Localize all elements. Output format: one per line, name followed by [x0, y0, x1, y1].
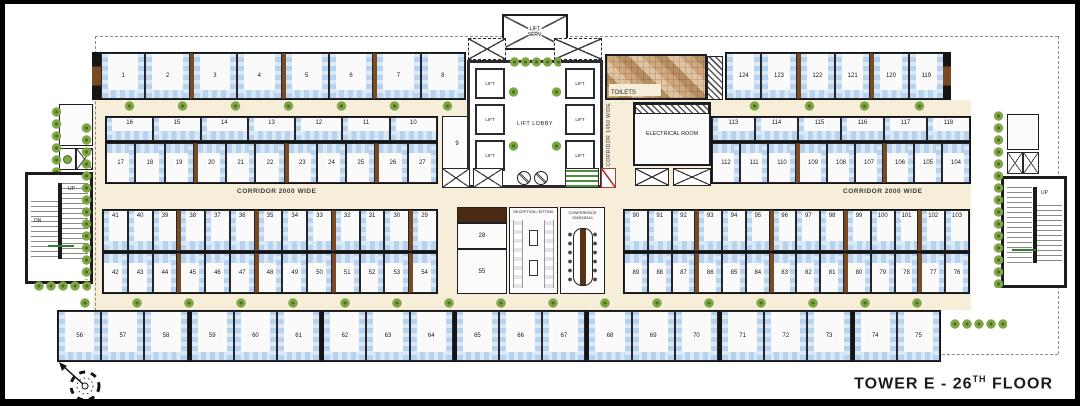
unit-number: 121	[847, 73, 859, 79]
unit-70: 70	[675, 311, 718, 361]
unit-number: 68	[606, 333, 615, 339]
unit-number: 54	[420, 270, 429, 276]
tree-col-left-b	[81, 122, 92, 280]
unit-number: 44	[161, 270, 170, 276]
unit-number: 92	[679, 213, 688, 219]
unit-85: 85	[722, 253, 746, 293]
unit-32: 32	[332, 210, 360, 251]
unit-row-bottom: 5657585960616263646566676869707172737475	[57, 310, 941, 362]
tree-cluster-left-bottom	[33, 280, 91, 291]
unit-number: 36	[238, 213, 247, 219]
unit-number: 74	[871, 333, 880, 339]
unit-95: 95	[746, 210, 770, 251]
unit-86: 86	[695, 253, 722, 293]
corridor-label-right: CORRIDOR 2000 WIDE	[843, 188, 922, 195]
lift-6: LIFT	[565, 140, 595, 171]
unit-row-mid-lower-right-bottom: 8988878685848382818079787776	[623, 252, 970, 294]
unit-37: 37	[205, 210, 230, 251]
unit-number: 114	[771, 120, 783, 126]
unit-number: 42	[111, 270, 120, 276]
unit-number: 80	[855, 270, 864, 276]
unit-number: 43	[136, 270, 145, 276]
unit-34: 34	[282, 210, 307, 251]
unit-number: 106	[894, 160, 906, 166]
unit-93: 93	[695, 210, 722, 251]
unit-30: 30	[384, 210, 409, 251]
unit-number: 72	[782, 333, 791, 339]
unit-64: 64	[410, 311, 453, 361]
unit-49: 49	[282, 253, 307, 293]
unit-113: 113	[712, 117, 755, 141]
unit-56: 56	[58, 311, 101, 361]
unit-83: 83	[770, 253, 797, 293]
unit-number: 9	[454, 141, 459, 147]
unit-63: 63	[366, 311, 409, 361]
unit-92: 92	[672, 210, 696, 251]
unit-row-mid-upper-left-top: 16151413121110	[105, 116, 438, 142]
unit-118: 118	[927, 117, 970, 141]
unit-124: 124	[726, 53, 761, 99]
column-circle-2	[534, 171, 548, 185]
unit-102: 102	[918, 210, 945, 251]
corridor-label-left: CORRIDOR 2000 WIDE	[237, 188, 316, 195]
unit-87: 87	[672, 253, 696, 293]
unit-number: 78	[902, 270, 911, 276]
unit-69: 69	[632, 311, 675, 361]
unit-number: 90	[632, 213, 641, 219]
unit-65: 65	[453, 311, 499, 361]
unit-number: 84	[753, 270, 762, 276]
unit-57: 57	[101, 311, 144, 361]
unit-54: 54	[409, 253, 437, 293]
unit-number: 35	[266, 213, 275, 219]
unit-11: 11	[342, 117, 389, 141]
unit-number: 96	[780, 213, 789, 219]
unit-84: 84	[746, 253, 770, 293]
unit-62: 62	[320, 311, 366, 361]
unit-number: 88	[655, 270, 664, 276]
tree-col-right	[993, 110, 1004, 288]
unit-number: 38	[188, 213, 197, 219]
corridor-1450-label: CORRIDOR 1450 WIDE	[606, 102, 618, 166]
conference-table	[573, 228, 593, 286]
toilets-label: TOILETS	[611, 90, 636, 96]
unit-27: 27	[408, 143, 437, 183]
unit-109: 109	[796, 143, 827, 183]
unit-number: 26	[389, 160, 398, 166]
unit-number: 97	[804, 213, 813, 219]
unit-45: 45	[177, 253, 205, 293]
unit-number: 75	[914, 333, 923, 339]
unit-94: 94	[722, 210, 746, 251]
unit-81: 81	[820, 253, 844, 293]
stair-handrail	[48, 245, 74, 247]
unit-number: 27	[418, 160, 427, 166]
unit-43: 43	[128, 253, 153, 293]
unit-14: 14	[201, 117, 248, 141]
unit-number: 28	[478, 233, 487, 239]
electrical-room-label: ELECTRICAL ROOM	[646, 131, 698, 138]
unit-75: 75	[897, 311, 940, 361]
unit-number: 71	[738, 333, 747, 339]
unit-98: 98	[820, 210, 844, 251]
unit-number: 113	[728, 120, 740, 126]
unit-46: 46	[205, 253, 230, 293]
unit-12: 12	[295, 117, 342, 141]
unit-number: 77	[929, 270, 938, 276]
unit-number: 120	[885, 73, 897, 79]
tree-cluster-right-bottom	[949, 318, 1007, 329]
unit-number: 82	[804, 270, 813, 276]
unit-number: 107	[863, 160, 875, 166]
unit-number: 61	[294, 333, 303, 339]
stair-up-label: UP	[1041, 191, 1048, 196]
shaft-electrical-b	[673, 168, 711, 186]
unit-number: 37	[213, 213, 222, 219]
lift-5: LIFT	[565, 104, 595, 135]
unit-number: 22	[266, 160, 275, 166]
shaft-fire	[601, 168, 616, 188]
floor-plan-sheet: 12345678 124123122121120119 161514131211…	[0, 0, 1080, 406]
unit-number: 103	[951, 213, 963, 219]
unit-number: 69	[649, 333, 658, 339]
unit-number: 55	[478, 269, 487, 275]
unit-number: 58	[162, 333, 171, 339]
unit-number: 67	[559, 333, 568, 339]
unit-78: 78	[895, 253, 919, 293]
unit-52: 52	[360, 253, 385, 293]
unit-44: 44	[153, 253, 178, 293]
unit-number: 85	[730, 270, 739, 276]
unit-number: 29	[420, 213, 429, 219]
unit-number: 23	[298, 160, 307, 166]
shaft-top-left	[468, 38, 506, 60]
unit-number: 81	[828, 270, 837, 276]
unit-24: 24	[317, 143, 346, 183]
stair-right: UP	[1001, 176, 1067, 288]
unit-19: 19	[165, 143, 194, 183]
electrical-hatch	[635, 104, 709, 114]
shaft-electrical-a	[635, 168, 669, 186]
unit-number: 93	[706, 213, 715, 219]
stair-right-flight-b	[1037, 205, 1062, 263]
unit-74: 74	[851, 311, 897, 361]
unit-96: 96	[770, 210, 797, 251]
unit-36: 36	[230, 210, 255, 251]
unit-row-top-right: 124123122121120119	[725, 52, 945, 100]
unit-112: 112	[712, 143, 740, 183]
unit-8: 8	[421, 53, 465, 99]
lift-lobby-label: LIFT LOBBY	[470, 121, 600, 127]
pantry-counter	[457, 207, 507, 223]
service-lift-label: LIFT SERV.	[528, 26, 542, 39]
unit-40: 40	[128, 210, 153, 251]
unit-number: 118	[943, 120, 955, 126]
unit-number: 12	[314, 120, 323, 126]
unit-13: 13	[248, 117, 295, 141]
unit-number: 30	[392, 213, 401, 219]
unit-number: 19	[175, 160, 184, 166]
unit-111: 111	[740, 143, 768, 183]
unit-41: 41	[103, 210, 128, 251]
unit-number: 16	[125, 120, 134, 126]
unit-73: 73	[807, 311, 850, 361]
unit-106: 106	[883, 143, 914, 183]
unit-number: 32	[343, 213, 352, 219]
right-planter-room	[1007, 114, 1039, 150]
unit-number: 70	[692, 333, 701, 339]
unit-101: 101	[895, 210, 919, 251]
unit-number: 100	[877, 213, 889, 219]
shaft-lobby-a	[442, 168, 470, 188]
unit-number: 24	[327, 160, 336, 166]
unit-39: 39	[153, 210, 178, 251]
unit-15: 15	[153, 117, 200, 141]
tree-row-top-right	[727, 100, 947, 112]
unit-91: 91	[648, 210, 672, 251]
unit-79: 79	[871, 253, 895, 293]
tree-row-bottom	[59, 297, 943, 309]
unit-47: 47	[230, 253, 255, 293]
unit-number: 21	[236, 160, 245, 166]
unit-22: 22	[255, 143, 284, 183]
right-lift-shaft-b	[1023, 152, 1039, 174]
unit-number: 115	[814, 120, 826, 126]
unit-number: 119	[921, 73, 933, 79]
reception-desks-left	[513, 220, 523, 288]
unit-31: 31	[360, 210, 385, 251]
unit-number: 7	[396, 73, 401, 79]
unit-2: 2	[145, 53, 189, 99]
unit-number: 3	[212, 73, 217, 79]
unit-72: 72	[764, 311, 807, 361]
unit-110: 110	[768, 143, 796, 183]
unit-number: 105	[922, 160, 934, 166]
unit-7: 7	[373, 53, 420, 99]
unit-120: 120	[870, 53, 908, 99]
unit-77: 77	[918, 253, 945, 293]
unit-number: 89	[632, 270, 641, 276]
unit-58: 58	[144, 311, 187, 361]
boundary-line-bottom-right	[937, 354, 1058, 355]
unit-29: 29	[409, 210, 437, 251]
lobby-planters-left	[508, 65, 519, 183]
unit-number: 73	[825, 333, 834, 339]
unit-number: 5	[304, 73, 309, 79]
unit-59: 59	[188, 311, 234, 361]
unit-60: 60	[234, 311, 277, 361]
unit-number: 60	[251, 333, 260, 339]
unit-33: 33	[307, 210, 332, 251]
unit-number: 124	[738, 73, 750, 79]
stair-right-flight-a	[1007, 187, 1032, 263]
unit-row-mid-upper-left-bottom: 1718192021222324252627	[105, 142, 438, 184]
unit-107: 107	[855, 143, 883, 183]
unit-48: 48	[255, 253, 283, 293]
unit-number: 14	[220, 120, 229, 126]
unit-number: 46	[213, 270, 222, 276]
unit-number: 53	[392, 270, 401, 276]
stair-left-flight-a	[31, 201, 58, 259]
unit-row-mid-lower-right-top: 90919293949596979899100101102103	[623, 209, 970, 252]
unit-row-mid-lower-left-bottom: 42434445464748495051525354	[102, 252, 438, 294]
unit-4: 4	[237, 53, 281, 99]
unit-122: 122	[797, 53, 835, 99]
unit-number: 51	[343, 270, 352, 276]
unit-number: 117	[900, 120, 912, 126]
unit-117: 117	[884, 117, 927, 141]
wall-block-right	[943, 52, 951, 100]
unit-number: 66	[516, 333, 525, 339]
reception-room: RECEPTION / SITTING	[509, 207, 558, 294]
unit-number: 18	[146, 160, 155, 166]
lift-1: LIFT	[475, 68, 505, 99]
unit-row-mid-upper-right-top: 113114115116117118	[711, 116, 971, 142]
unit-number: 110	[776, 160, 788, 166]
unit-18: 18	[135, 143, 164, 183]
unit-number: 98	[828, 213, 837, 219]
stair-down-label: DN	[34, 219, 41, 224]
unit-number: 13	[267, 120, 276, 126]
unit-42: 42	[103, 253, 128, 293]
unit-number: 45	[188, 270, 197, 276]
unit-115: 115	[798, 117, 841, 141]
unit-number: 83	[780, 270, 789, 276]
unit-50: 50	[307, 253, 332, 293]
unit-114: 114	[755, 117, 798, 141]
column-circle-1	[517, 171, 531, 185]
unit-108: 108	[827, 143, 855, 183]
conference-label: CONFERENCE 2500X6244	[568, 210, 596, 220]
unit-number: 108	[835, 160, 847, 166]
wall-block-left	[92, 52, 101, 100]
unit-82: 82	[796, 253, 820, 293]
unit-90: 90	[624, 210, 648, 251]
unit-number: 48	[266, 270, 275, 276]
unit-76: 76	[945, 253, 969, 293]
unit-number: 40	[136, 213, 145, 219]
unit-10: 10	[390, 117, 437, 141]
right-lift-shaft-a	[1007, 152, 1023, 174]
shaft-louvre	[565, 168, 599, 188]
unit-number: 122	[811, 73, 823, 79]
lobby-entry-planters	[509, 56, 561, 67]
unit-number: 39	[161, 213, 170, 219]
unit-number: 1	[121, 73, 126, 79]
unit-28: 28	[457, 223, 507, 249]
unit-119: 119	[909, 53, 944, 99]
unit-number: 91	[655, 213, 664, 219]
reception-desks-right	[544, 220, 554, 288]
reception-label: RECEPTION / SITTING	[513, 210, 553, 215]
lift-2: LIFT	[475, 104, 505, 135]
unit-number: 95	[753, 213, 762, 219]
stair-up-label: UP	[68, 187, 75, 192]
unit-103: 103	[945, 210, 969, 251]
unit-99: 99	[844, 210, 871, 251]
unit-51: 51	[332, 253, 360, 293]
unit-105: 105	[914, 143, 942, 183]
unit-number: 41	[111, 213, 120, 219]
unit-80: 80	[844, 253, 871, 293]
unit-121: 121	[835, 53, 870, 99]
unit-number: 101	[900, 213, 912, 219]
unit-61: 61	[277, 311, 320, 361]
unit-number: 79	[878, 270, 887, 276]
unit-66: 66	[499, 311, 542, 361]
unit-6: 6	[329, 53, 373, 99]
conference-chairs-right	[591, 230, 599, 286]
unit-100: 100	[871, 210, 895, 251]
lobby-planters-right	[551, 65, 562, 183]
unit-16: 16	[106, 117, 153, 141]
unit-number: 47	[238, 270, 247, 276]
unit-number: 31	[368, 213, 377, 219]
lift-4: LIFT	[565, 68, 595, 99]
unit-97: 97	[796, 210, 820, 251]
unit-71: 71	[718, 311, 764, 361]
unit-1: 1	[101, 53, 145, 99]
unit-21: 21	[226, 143, 255, 183]
unit-55: 55	[457, 249, 507, 294]
unit-38: 38	[177, 210, 205, 251]
unit-number: 17	[116, 160, 125, 166]
unit-20: 20	[194, 143, 226, 183]
unit-row-mid-lower-left-top: 41403938373635343332313029	[102, 209, 438, 252]
unit-number: 76	[953, 270, 962, 276]
unit-116: 116	[841, 117, 884, 141]
unit-row-top-left: 12345678	[100, 52, 466, 100]
unit-number: 86	[706, 270, 715, 276]
conference-room: CONFERENCE 2500X6244	[560, 207, 605, 294]
unit-104: 104	[942, 143, 970, 183]
unit-number: 20	[207, 160, 216, 166]
unit-67: 67	[542, 311, 585, 361]
unit-number: 116	[857, 120, 869, 126]
tree-col-left-a	[51, 106, 62, 172]
unit-number: 25	[356, 160, 365, 166]
unit-number: 111	[748, 160, 759, 166]
unit-35: 35	[255, 210, 283, 251]
unit-number: 64	[427, 333, 436, 339]
unit-17: 17	[106, 143, 135, 183]
page-title: TOWER E - 26TH FLOOR	[854, 374, 1053, 393]
unit-number: 104	[950, 160, 962, 166]
unit-number: 109	[807, 160, 819, 166]
lift-3: LIFT	[475, 140, 505, 171]
reception-table-2	[529, 260, 538, 276]
north-compass-icon	[53, 358, 113, 406]
unit-number: 49	[290, 270, 299, 276]
conference-chairs-left	[566, 230, 574, 286]
unit-3: 3	[190, 53, 237, 99]
unit-89: 89	[624, 253, 648, 293]
stair-handrail	[1012, 249, 1036, 251]
unit-number: 50	[315, 270, 324, 276]
shaft-lobby-b	[473, 168, 503, 188]
unit-number: 11	[362, 120, 370, 126]
shaft-top-right	[554, 38, 602, 60]
hatch-patch	[707, 56, 723, 100]
unit-number: 94	[730, 213, 739, 219]
unit-5: 5	[282, 53, 329, 99]
unit-row-mid-upper-right-bottom: 112111110109108107106105104	[711, 142, 971, 184]
unit-number: 34	[290, 213, 299, 219]
unit-number: 59	[208, 333, 217, 339]
tree-row-top-left	[103, 100, 465, 112]
unit-number: 87	[679, 270, 688, 276]
unit-number: 57	[118, 333, 127, 339]
